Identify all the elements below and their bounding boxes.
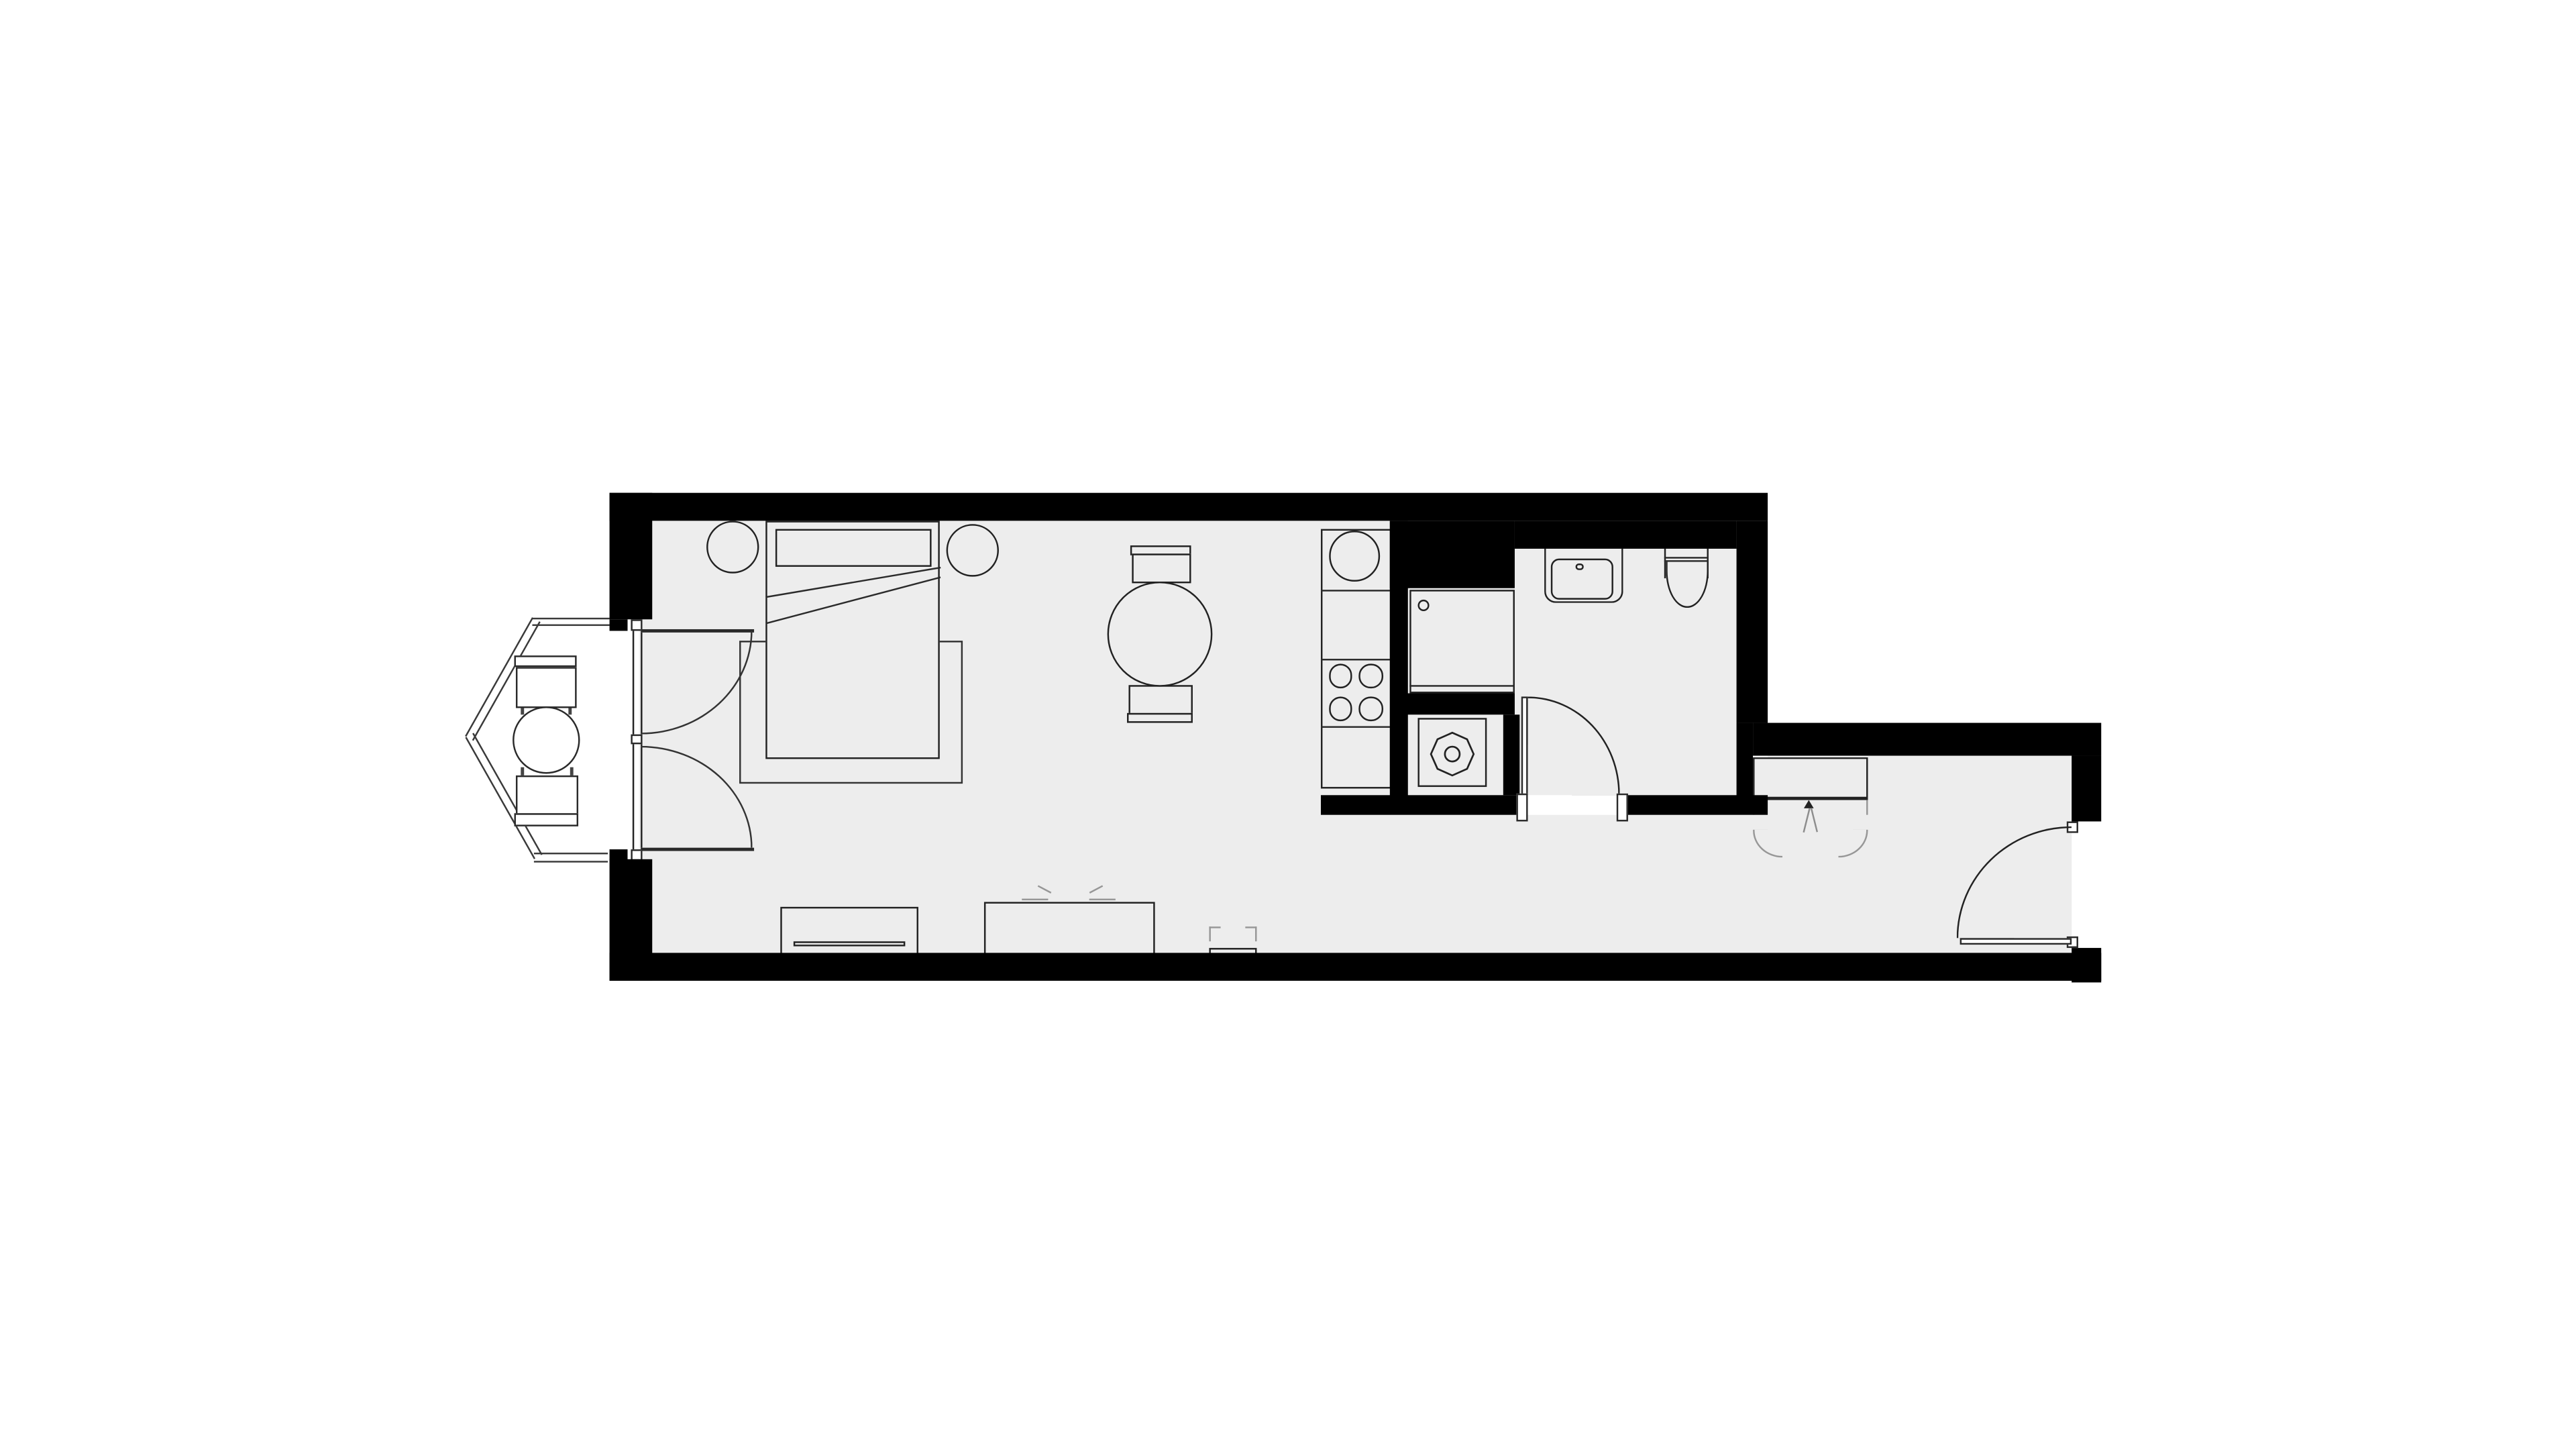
bay-chair-upper-leg-left: [521, 707, 523, 714]
appliance-cabinet-bottom-line: [1409, 685, 1513, 686]
closet-door-right-line: [1867, 800, 1868, 815]
toilet-tank-line-1: [1664, 556, 1709, 557]
french-door-lower-leaf: [641, 847, 753, 851]
burner-bottom-left: [1329, 697, 1353, 721]
bay-chair-upper-back: [515, 655, 577, 667]
counter-divider-2: [1320, 659, 1391, 660]
bathroom-door-jamb-right: [1617, 794, 1628, 820]
pillow: [775, 529, 932, 567]
bay-chair-upper-seat: [516, 666, 576, 707]
wall-top-bathroom-furring: [1515, 521, 1737, 549]
sideboard-drawer-slot: [793, 941, 906, 947]
wardrobe-slide-arrow-left: [1089, 898, 1116, 899]
wall-top: [610, 493, 1768, 521]
window-mullion-center: [630, 735, 642, 745]
bathroom-door-jamb-left: [1516, 794, 1527, 820]
wall-top-niche-furring: [1390, 521, 1515, 588]
wall-hallway-right-upper: [2072, 756, 2101, 822]
wall-left-window-stub-bottom: [610, 849, 628, 860]
dining-chair-bottom-seat: [1128, 684, 1192, 714]
floorplan-canvas: [0, 0, 2576, 1449]
closet-rail-arrow-head: [1804, 800, 1814, 808]
entry-door-leaf: [1960, 937, 2071, 945]
radiator-bracket-left: [1209, 926, 1220, 941]
bay-chair-lower-seat: [515, 775, 578, 815]
wall-left-upper: [610, 493, 653, 620]
radiator-bracket-right: [1245, 926, 1256, 941]
bedside-table-right: [947, 524, 999, 576]
floorplan-stage: [0, 0, 2576, 1449]
wall-kitchen-right: [1390, 521, 1407, 811]
wall-hallway-top: [1753, 723, 2101, 756]
bay-bistro-table: [512, 706, 579, 773]
wall-bathroom-right: [1737, 521, 1768, 722]
dining-chair-bottom-back: [1127, 712, 1193, 722]
kitchen-sink-basin: [1328, 531, 1379, 582]
bathroom-door-leaf: [1521, 696, 1527, 795]
burner-top-left: [1329, 664, 1353, 688]
wall-hallway-right-lower: [2072, 947, 2101, 981]
bay-chair-upper-leg-right: [568, 707, 571, 714]
bay-chair-lower-leg-right: [570, 767, 573, 775]
counter-divider-3: [1320, 726, 1391, 727]
dining-chair-top-seat: [1131, 553, 1190, 583]
sliding-wardrobe: [984, 902, 1155, 956]
bay-wall-top: [532, 617, 608, 626]
wardrobe-slide-arrow-right: [1022, 898, 1048, 899]
washing-machine-drum: [1428, 729, 1477, 777]
bay-chair-lower-leg-left: [521, 767, 523, 775]
bay-wall-bottom: [533, 853, 608, 861]
counter-divider-1: [1320, 590, 1391, 591]
wall-bathroom-right-column: [1737, 723, 1753, 814]
burner-bottom-right: [1359, 697, 1383, 721]
wall-niche-bathroom: [1503, 714, 1519, 795]
round-dining-table: [1108, 581, 1213, 686]
hall-closet: [1753, 757, 1868, 800]
wall-under-counter: [1320, 795, 1517, 814]
wall-left-window-stub-top: [610, 619, 628, 630]
sideboard: [780, 907, 918, 956]
wall-bottom: [610, 953, 2102, 981]
burner-top-right: [1359, 664, 1383, 688]
wall-niche-divider: [1406, 693, 1515, 714]
bedside-table-left: [706, 521, 759, 573]
bay-chair-lower-back: [515, 813, 579, 825]
sink-faucet-dot: [1576, 563, 1583, 570]
